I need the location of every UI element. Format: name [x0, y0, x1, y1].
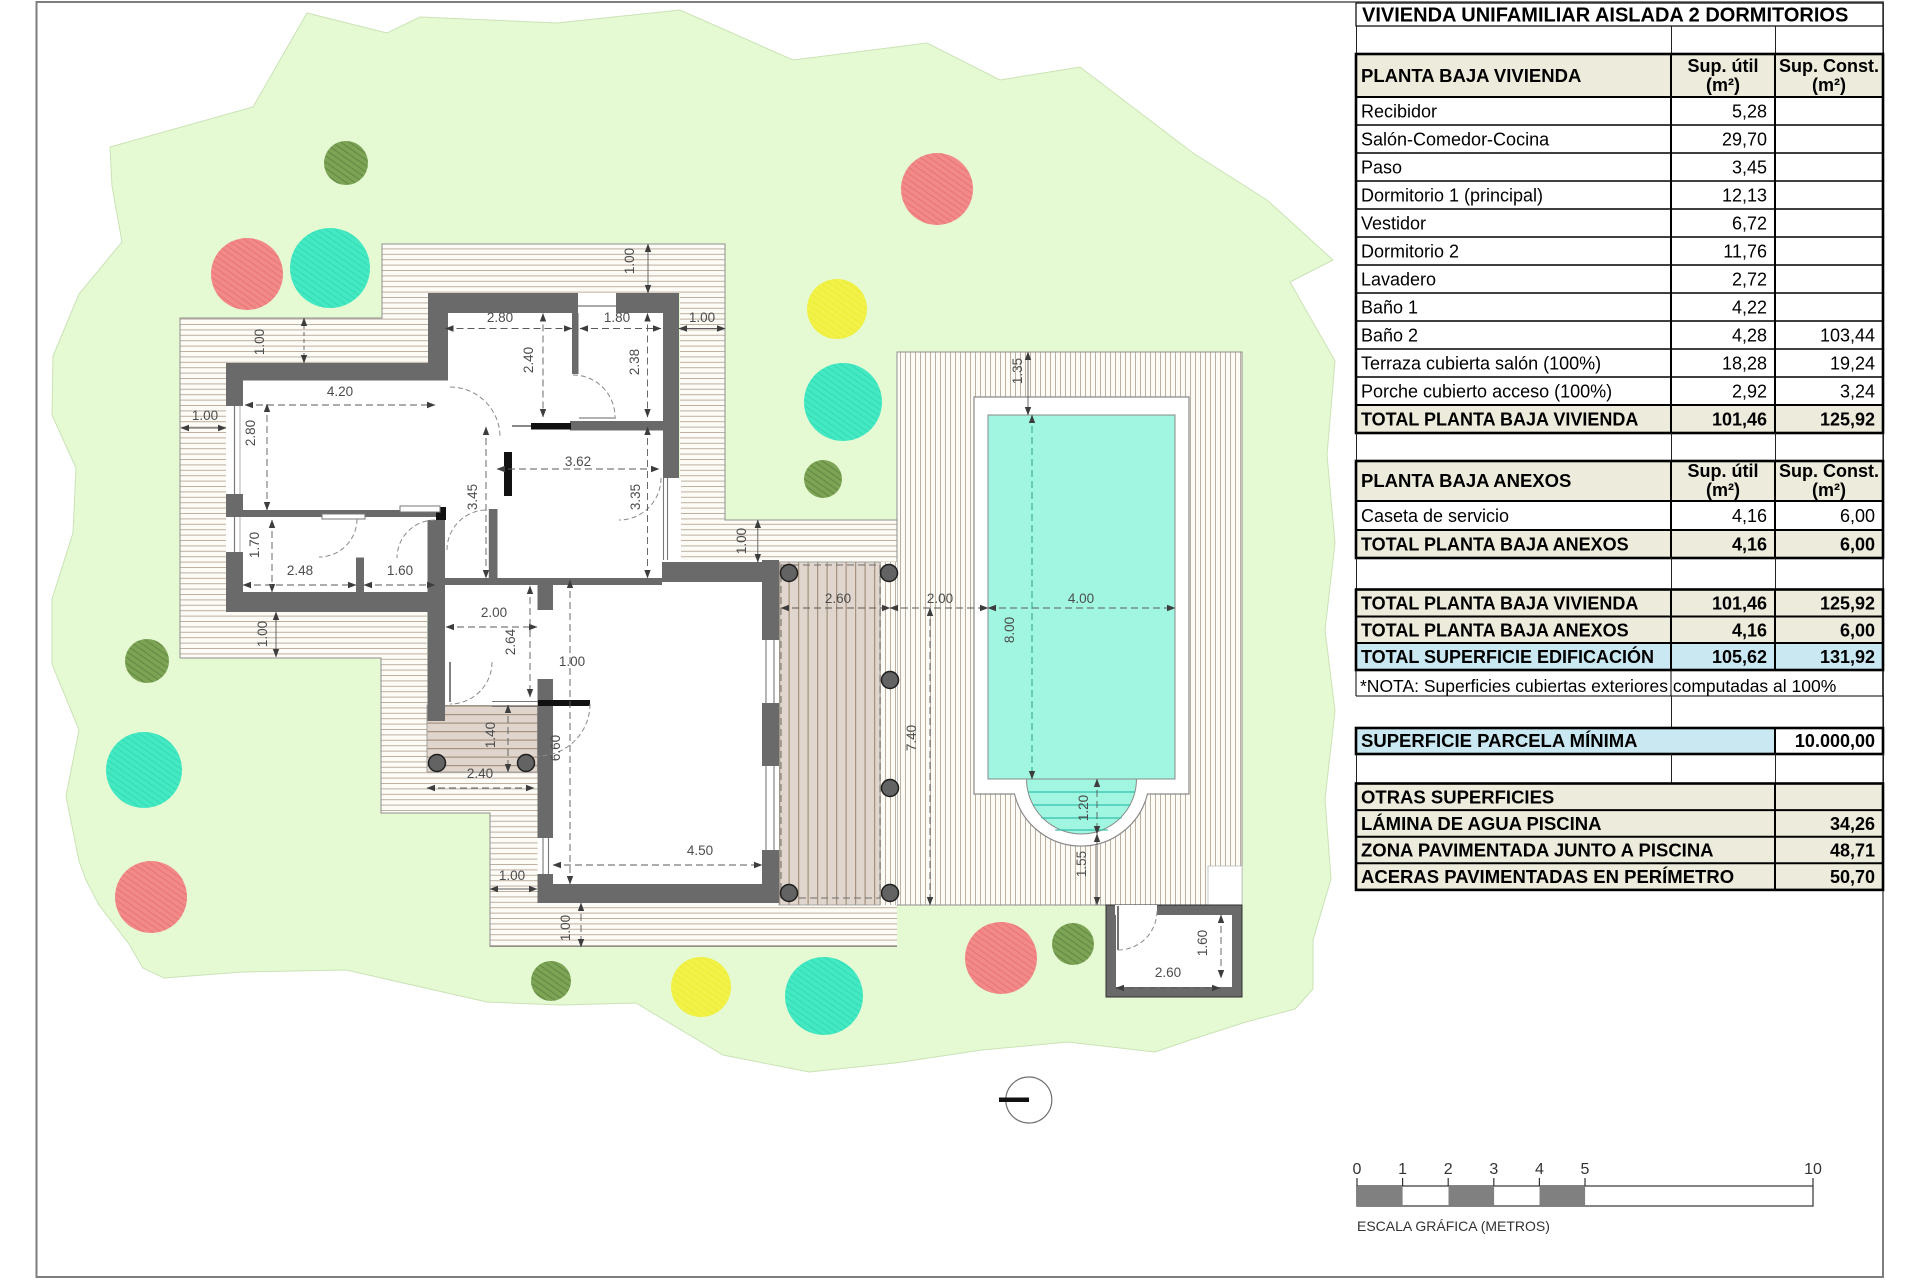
svg-text:6,00: 6,00 — [1840, 535, 1875, 555]
svg-text:Salón-Comedor-Cocina: Salón-Comedor-Cocina — [1361, 130, 1550, 150]
svg-text:1.00: 1.00 — [734, 528, 749, 554]
svg-text:*NOTA: Superficies cubiertas e: *NOTA: Superficies cubiertas exteriores … — [1360, 676, 1836, 696]
svg-text:TOTAL SUPERFICIE EDIFICACIÓN: TOTAL SUPERFICIE EDIFICACIÓN — [1361, 646, 1654, 667]
svg-text:4,28: 4,28 — [1732, 326, 1767, 346]
svg-text:1.70: 1.70 — [247, 532, 262, 558]
svg-text:125,92: 125,92 — [1820, 594, 1875, 614]
svg-text:18,28: 18,28 — [1722, 354, 1767, 374]
svg-text:Porche cubierto acceso (100%): Porche cubierto acceso (100%) — [1361, 382, 1612, 402]
svg-text:Lavadero: Lavadero — [1361, 270, 1436, 290]
svg-text:2.80: 2.80 — [243, 420, 258, 446]
svg-text:2.40: 2.40 — [467, 766, 493, 781]
svg-text:29,70: 29,70 — [1722, 130, 1767, 150]
svg-text:4: 4 — [1535, 1161, 1544, 1178]
svg-text:Baño 1: Baño 1 — [1361, 298, 1418, 318]
svg-text:SUPERFICIE PARCELA MÍNIMA: SUPERFICIE PARCELA MÍNIMA — [1361, 730, 1637, 751]
svg-text:1.00: 1.00 — [252, 329, 267, 355]
svg-text:1.00: 1.00 — [255, 621, 270, 647]
svg-text:3: 3 — [1489, 1161, 1498, 1178]
svg-text:1.00: 1.00 — [192, 408, 218, 423]
svg-text:ESCALA GRÁFICA (METROS): ESCALA GRÁFICA (METROS) — [1357, 1218, 1550, 1234]
svg-text:Baño 2: Baño 2 — [1361, 326, 1418, 346]
svg-text:VIVIENDA UNIFAMILIAR AISLADA 2: VIVIENDA UNIFAMILIAR AISLADA 2 DORMITORI… — [1362, 5, 1848, 27]
svg-text:1.40: 1.40 — [483, 722, 498, 748]
svg-text:4,16: 4,16 — [1732, 506, 1767, 526]
svg-text:ACERAS PAVIMENTADAS EN PERÍMET: ACERAS PAVIMENTADAS EN PERÍMETRO — [1361, 866, 1734, 887]
svg-text:PLANTA BAJA VIVIENDA: PLANTA BAJA VIVIENDA — [1361, 65, 1581, 86]
svg-text:10: 10 — [1804, 1161, 1822, 1178]
svg-text:1.60: 1.60 — [387, 563, 413, 578]
svg-text:(m²): (m²) — [1706, 480, 1740, 500]
svg-text:1.00: 1.00 — [559, 654, 585, 669]
svg-text:Terraza cubierta salón (100%): Terraza cubierta salón (100%) — [1361, 354, 1601, 374]
svg-text:103,44: 103,44 — [1820, 326, 1875, 346]
svg-text:Vestidor: Vestidor — [1361, 214, 1426, 234]
svg-text:(m²): (m²) — [1812, 480, 1846, 500]
svg-text:Sup. útil: Sup. útil — [1688, 461, 1759, 481]
svg-text:4.20: 4.20 — [327, 384, 353, 399]
svg-text:3.62: 3.62 — [565, 454, 591, 469]
svg-text:2.00: 2.00 — [927, 591, 953, 606]
svg-text:4.00: 4.00 — [1068, 591, 1094, 606]
svg-text:2.64: 2.64 — [503, 628, 518, 655]
svg-text:0: 0 — [1353, 1161, 1362, 1178]
svg-text:10.000,00: 10.000,00 — [1795, 731, 1875, 751]
svg-text:(m²): (m²) — [1812, 75, 1846, 95]
svg-text:3,45: 3,45 — [1732, 158, 1767, 178]
svg-text:TOTAL PLANTA BAJA ANEXOS: TOTAL PLANTA BAJA ANEXOS — [1361, 535, 1629, 555]
svg-text:2.00: 2.00 — [481, 605, 507, 620]
svg-text:Caseta de servicio: Caseta de servicio — [1361, 506, 1509, 526]
svg-text:1.35: 1.35 — [1010, 358, 1025, 384]
svg-text:1.00: 1.00 — [622, 248, 637, 274]
svg-text:3,24: 3,24 — [1840, 382, 1875, 402]
svg-text:48,71: 48,71 — [1830, 841, 1875, 861]
svg-text:4.50: 4.50 — [687, 843, 713, 858]
svg-text:2,92: 2,92 — [1732, 382, 1767, 402]
svg-text:2.38: 2.38 — [627, 349, 642, 375]
svg-text:2.40: 2.40 — [521, 347, 536, 373]
svg-text:2.80: 2.80 — [487, 310, 513, 325]
svg-text:Sup. útil: Sup. útil — [1688, 56, 1759, 76]
svg-text:1.00: 1.00 — [689, 310, 715, 325]
svg-text:131,92: 131,92 — [1820, 647, 1875, 667]
svg-text:3.45: 3.45 — [465, 484, 480, 510]
svg-text:1.00: 1.00 — [499, 868, 525, 883]
svg-text:2.48: 2.48 — [287, 563, 313, 578]
svg-text:4,22: 4,22 — [1732, 298, 1767, 318]
svg-text:TOTAL PLANTA BAJA ANEXOS: TOTAL PLANTA BAJA ANEXOS — [1361, 620, 1629, 640]
svg-text:5,28: 5,28 — [1732, 102, 1767, 122]
svg-text:TOTAL PLANTA BAJA VIVIENDA: TOTAL PLANTA BAJA VIVIENDA — [1361, 410, 1638, 430]
svg-text:1.55: 1.55 — [1074, 851, 1089, 877]
svg-text:(m²): (m²) — [1706, 75, 1740, 95]
svg-text:Dormitorio 1 (principal): Dormitorio 1 (principal) — [1361, 186, 1543, 206]
svg-text:3.35: 3.35 — [628, 484, 643, 510]
svg-text:50,70: 50,70 — [1830, 867, 1875, 887]
svg-text:2.60: 2.60 — [1155, 965, 1181, 980]
svg-text:19,24: 19,24 — [1830, 354, 1875, 374]
svg-text:LÁMINA DE AGUA PISCINA: LÁMINA DE AGUA PISCINA — [1361, 813, 1602, 834]
svg-text:6.60: 6.60 — [548, 735, 563, 761]
svg-text:Recibidor: Recibidor — [1361, 102, 1437, 122]
svg-text:Sup. Const.: Sup. Const. — [1779, 461, 1879, 481]
svg-text:2: 2 — [1444, 1161, 1453, 1178]
svg-text:1: 1 — [1398, 1161, 1407, 1178]
svg-text:TOTAL PLANTA BAJA VIVIENDA: TOTAL PLANTA BAJA VIVIENDA — [1361, 594, 1638, 614]
svg-text:Sup. Const.: Sup. Const. — [1779, 56, 1879, 76]
svg-text:7.40: 7.40 — [904, 725, 919, 751]
svg-text:2.60: 2.60 — [825, 591, 851, 606]
svg-text:101,46: 101,46 — [1712, 410, 1767, 430]
svg-text:1.60: 1.60 — [1195, 930, 1210, 956]
svg-text:ZONA PAVIMENTADA JUNTO A PISCI: ZONA PAVIMENTADA JUNTO A PISCINA — [1361, 840, 1714, 861]
svg-text:125,92: 125,92 — [1820, 410, 1875, 430]
svg-text:1.00: 1.00 — [558, 915, 573, 941]
svg-text:8.00: 8.00 — [1002, 617, 1017, 643]
svg-text:5: 5 — [1581, 1161, 1590, 1178]
svg-text:34,26: 34,26 — [1830, 814, 1875, 834]
svg-text:4,16: 4,16 — [1732, 620, 1767, 640]
svg-text:PLANTA BAJA ANEXOS: PLANTA BAJA ANEXOS — [1361, 470, 1571, 491]
svg-text:2,72: 2,72 — [1732, 270, 1767, 290]
svg-text:6,00: 6,00 — [1840, 506, 1875, 526]
svg-text:1.80: 1.80 — [604, 310, 630, 325]
svg-text:4,16: 4,16 — [1732, 535, 1767, 555]
svg-text:12,13: 12,13 — [1722, 186, 1767, 206]
svg-text:6,72: 6,72 — [1732, 214, 1767, 234]
svg-text:Paso: Paso — [1361, 158, 1402, 178]
svg-text:101,46: 101,46 — [1712, 594, 1767, 614]
svg-text:1.20: 1.20 — [1076, 795, 1091, 821]
svg-text:Dormitorio 2: Dormitorio 2 — [1361, 242, 1459, 262]
svg-text:105,62: 105,62 — [1712, 647, 1767, 667]
svg-text:OTRAS SUPERFICIES: OTRAS SUPERFICIES — [1361, 786, 1554, 807]
svg-text:11,76: 11,76 — [1723, 242, 1767, 262]
svg-text:6,00: 6,00 — [1840, 620, 1875, 640]
